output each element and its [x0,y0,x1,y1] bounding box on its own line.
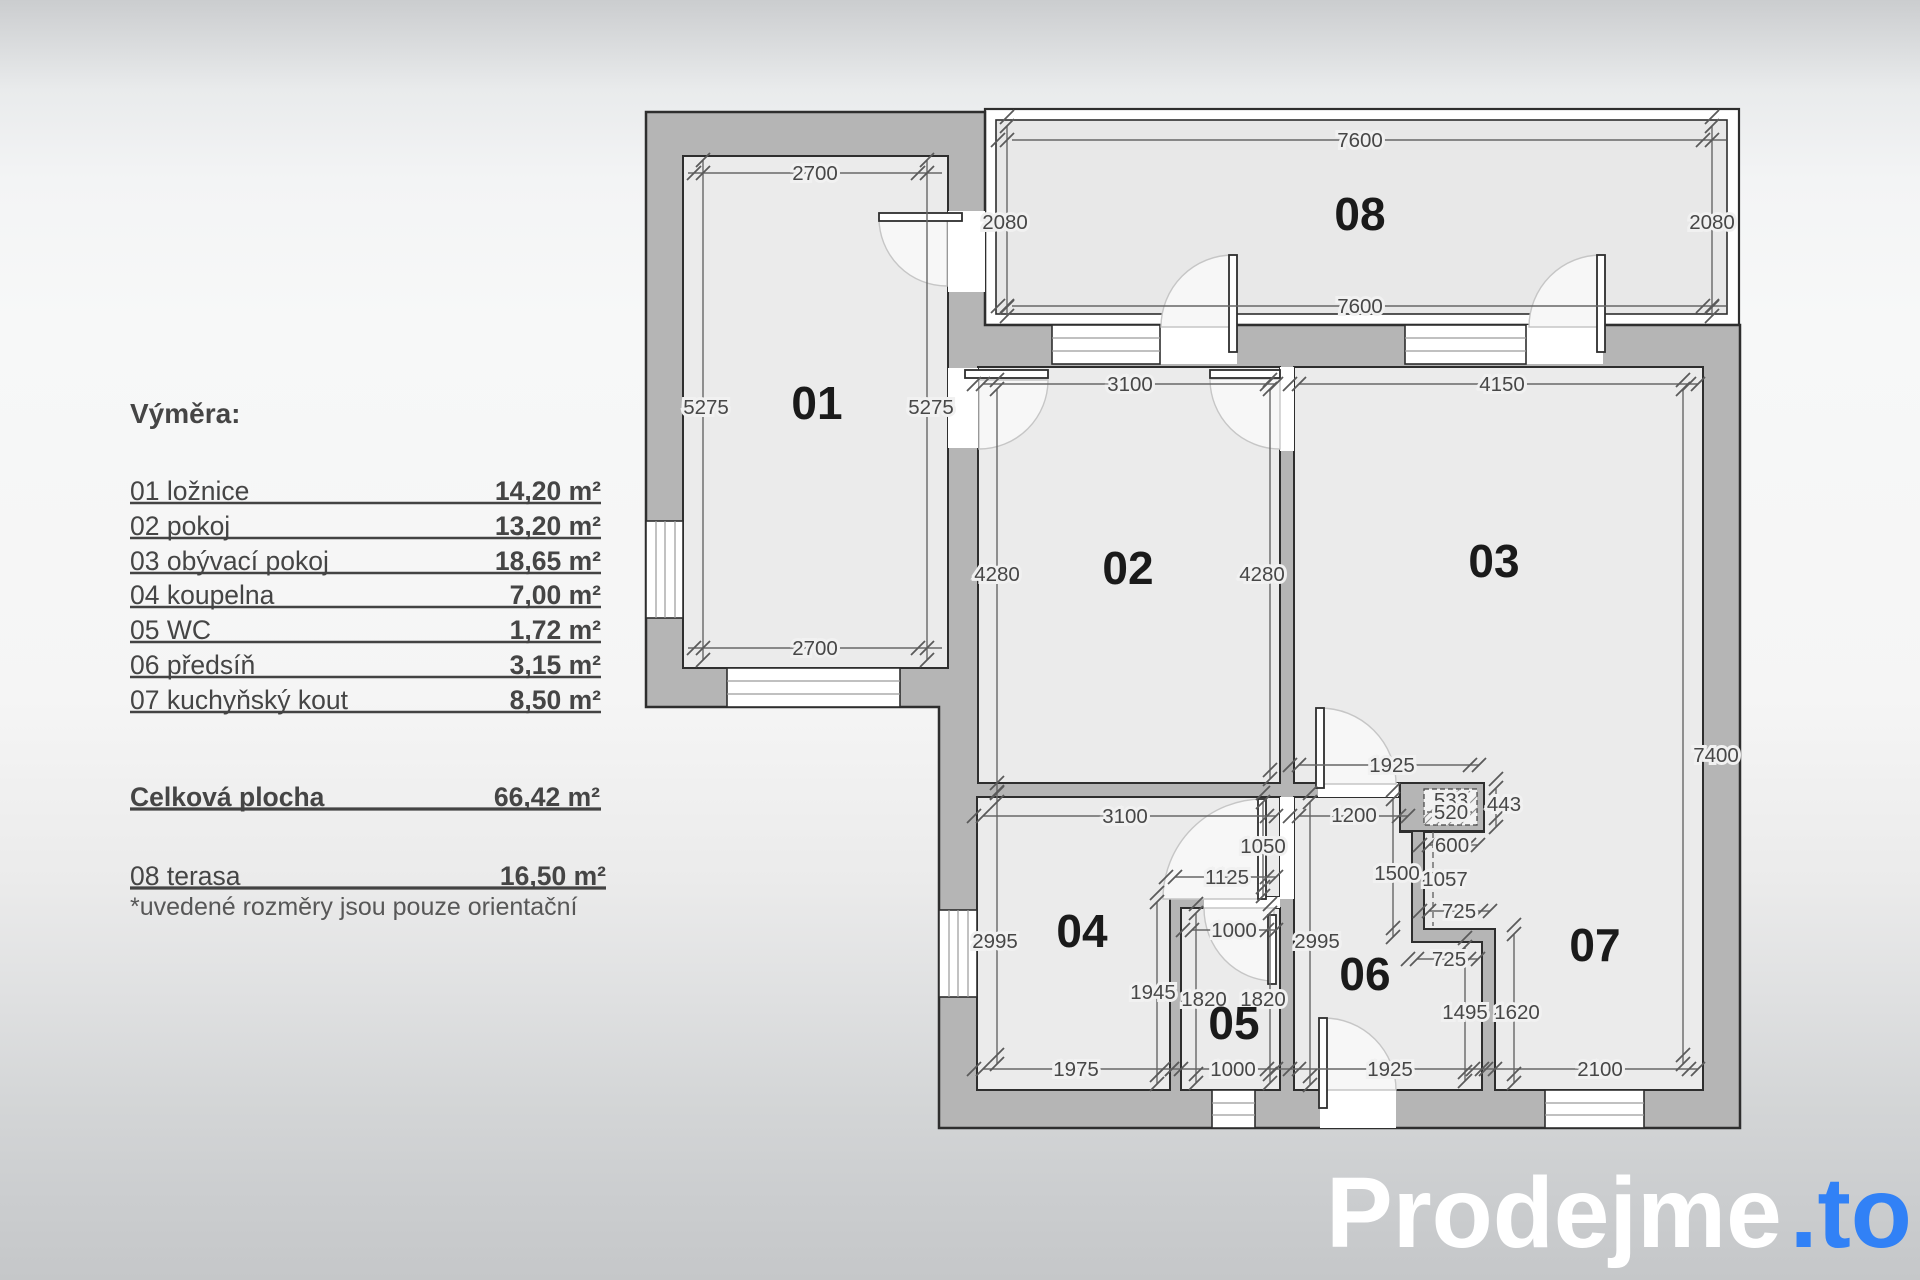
svg-text:3100: 3100 [1102,805,1148,828]
svg-text:5275: 5275 [908,396,954,419]
svg-text:1500: 1500 [1374,862,1420,885]
svg-text:1620: 1620 [1494,1001,1540,1024]
svg-text:04 koupelna: 04 koupelna [130,580,275,610]
svg-text:03: 03 [1468,535,1519,587]
svg-text:7400: 7400 [1693,744,1739,767]
svg-text:2700: 2700 [792,162,838,185]
svg-text:14,20 m²: 14,20 m² [495,476,601,506]
svg-text:05 WC: 05 WC [130,615,211,645]
svg-text:1057: 1057 [1422,868,1468,891]
svg-text:7,00 m²: 7,00 m² [510,580,602,610]
svg-text:Výměra:: Výměra: [130,398,241,429]
svg-text:02: 02 [1102,542,1153,594]
svg-text:13,20 m²: 13,20 m² [495,511,601,541]
svg-text:4280: 4280 [1239,563,1285,586]
svg-text:07 kuchyňský kout: 07 kuchyňský kout [130,685,349,715]
svg-text:7600: 7600 [1337,295,1383,318]
svg-text:1925: 1925 [1369,754,1415,777]
svg-text:2080: 2080 [1689,211,1735,234]
svg-text:1975: 1975 [1053,1058,1099,1081]
svg-text:2995: 2995 [972,930,1018,953]
svg-text:2700: 2700 [792,637,838,660]
svg-text:1495: 1495 [1442,1001,1488,1024]
svg-text:1050: 1050 [1240,835,1286,858]
svg-text:18,65 m²: 18,65 m² [495,546,601,576]
svg-text:443: 443 [1487,793,1521,816]
svg-text:5275: 5275 [683,396,729,419]
svg-text:3,15 m²: 3,15 m² [510,650,602,680]
svg-text:1,72 m²: 1,72 m² [510,615,602,645]
svg-text:725: 725 [1442,900,1476,923]
svg-text:3100: 3100 [1107,373,1153,396]
svg-text:*uvedené rozměry jsou pouze or: *uvedené rozměry jsou pouze orientační [130,893,578,921]
svg-text:01: 01 [791,377,842,429]
svg-text:06: 06 [1339,948,1390,1000]
svg-text:2100: 2100 [1577,1058,1623,1081]
svg-text:2995: 2995 [1294,930,1340,953]
svg-text:Prodejme.to: Prodejme.to [1326,1157,1912,1269]
svg-text:04: 04 [1056,905,1108,957]
svg-text:1945: 1945 [1130,981,1176,1004]
svg-text:07: 07 [1569,919,1620,971]
svg-text:03 obývací pokoj: 03 obývací pokoj [130,546,329,576]
svg-text:1000: 1000 [1210,1058,1256,1081]
svg-text:1000: 1000 [1211,919,1257,942]
svg-text:2080: 2080 [982,211,1028,234]
svg-text:01 ložnice: 01 ložnice [130,476,249,506]
svg-text:08: 08 [1334,188,1385,240]
svg-text:520: 520 [1434,801,1468,824]
svg-text:725: 725 [1432,948,1466,971]
svg-text:600: 600 [1435,834,1469,857]
svg-text:05: 05 [1208,997,1259,1049]
svg-text:1125: 1125 [1205,866,1249,889]
svg-text:4280: 4280 [974,563,1020,586]
svg-text:7600: 7600 [1337,129,1383,152]
svg-text:4150: 4150 [1479,373,1525,396]
svg-text:06 předsíň: 06 předsíň [130,650,255,680]
svg-text:1200: 1200 [1331,804,1377,827]
svg-text:02 pokoj: 02 pokoj [130,511,230,541]
svg-text:1925: 1925 [1367,1058,1413,1081]
svg-text:8,50 m²: 8,50 m² [510,685,602,715]
